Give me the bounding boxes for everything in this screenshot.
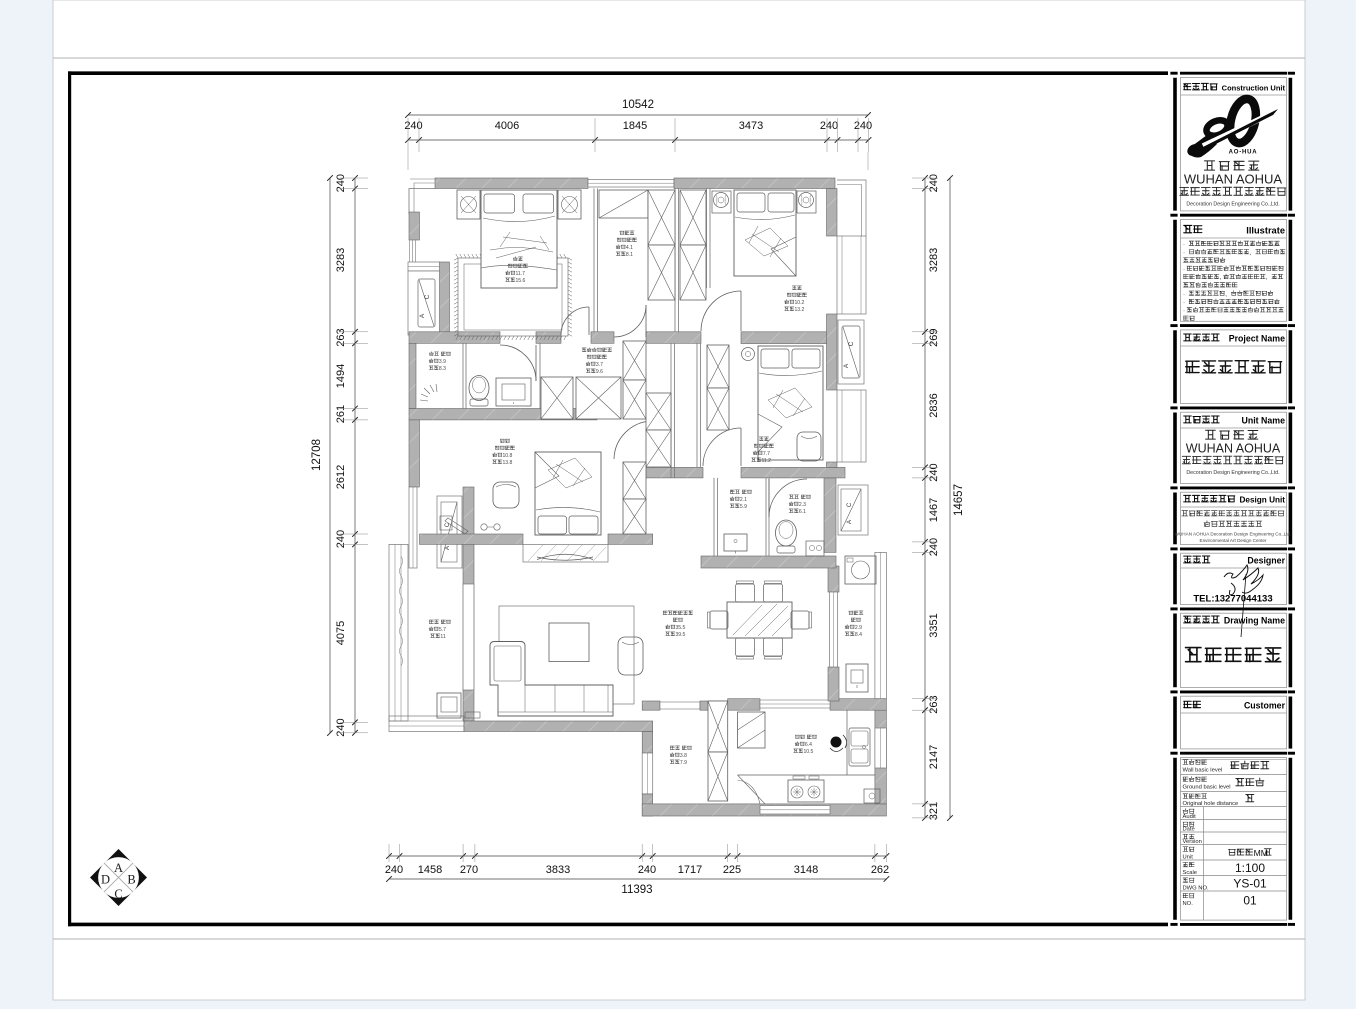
svg-text:A: A bbox=[843, 363, 850, 368]
svg-text:Illustrate: Illustrate bbox=[1246, 226, 1285, 236]
svg-text:Original hole distance: Original hole distance bbox=[1183, 801, 1239, 807]
svg-text:261: 261 bbox=[335, 405, 347, 423]
svg-text:10.2: 10.2 bbox=[794, 300, 804, 306]
svg-text:2.3: 2.3 bbox=[799, 502, 806, 508]
svg-text:6.4: 6.4 bbox=[805, 742, 812, 748]
svg-text:2.1: 2.1 bbox=[740, 497, 747, 503]
svg-text:4075: 4075 bbox=[335, 621, 347, 645]
svg-text:A: A bbox=[114, 861, 123, 875]
svg-text:1494: 1494 bbox=[335, 364, 347, 388]
svg-text:MM: MM bbox=[1254, 848, 1268, 858]
svg-text:240: 240 bbox=[928, 174, 940, 192]
svg-text:3.7: 3.7 bbox=[596, 362, 603, 368]
svg-text:WUHAN AOHUA: WUHAN AOHUA bbox=[1186, 442, 1281, 456]
svg-text:240: 240 bbox=[404, 120, 422, 132]
svg-text:240: 240 bbox=[928, 463, 940, 481]
svg-text:11.7: 11.7 bbox=[515, 271, 525, 277]
svg-text:A: A bbox=[419, 313, 426, 318]
svg-text:A: A bbox=[847, 520, 853, 524]
svg-text:Scale: Scale bbox=[1183, 870, 1198, 876]
svg-text:270: 270 bbox=[460, 864, 478, 876]
svg-text:2836: 2836 bbox=[928, 393, 940, 417]
svg-text:Date: Date bbox=[1183, 827, 1195, 833]
svg-text:Wall basic level: Wall basic level bbox=[1183, 768, 1223, 774]
svg-text:DWG NO.: DWG NO. bbox=[1183, 886, 1209, 892]
svg-text:Version: Version bbox=[1183, 839, 1202, 845]
svg-text:11: 11 bbox=[440, 634, 445, 640]
svg-text:7.7: 7.7 bbox=[763, 451, 770, 457]
svg-text:321: 321 bbox=[928, 802, 940, 820]
svg-text:5.9: 5.9 bbox=[740, 504, 747, 510]
svg-text:240: 240 bbox=[638, 864, 656, 876]
svg-text:11.2: 11.2 bbox=[761, 458, 771, 464]
svg-text:Decoration Design Engineering: Decoration Design Engineering Co.,Ltd. bbox=[1186, 470, 1279, 476]
svg-text:·: · bbox=[1183, 291, 1185, 298]
svg-text:·: · bbox=[1183, 266, 1185, 273]
svg-text:1458: 1458 bbox=[418, 864, 442, 876]
svg-text:2147: 2147 bbox=[928, 745, 940, 769]
svg-text:YS-01: YS-01 bbox=[1233, 876, 1267, 890]
svg-text:3833: 3833 bbox=[546, 864, 570, 876]
svg-text:35.5: 35.5 bbox=[675, 625, 685, 631]
svg-text:Environmental Art Design Cente: Environmental Art Design Center bbox=[1200, 538, 1267, 543]
svg-text:13.2: 13.2 bbox=[794, 307, 804, 313]
svg-text:240: 240 bbox=[385, 864, 403, 876]
svg-text:C: C bbox=[114, 887, 122, 901]
svg-text:1845: 1845 bbox=[623, 120, 647, 132]
svg-text:240: 240 bbox=[928, 538, 940, 556]
svg-text:225: 225 bbox=[723, 864, 741, 876]
svg-text:10.8: 10.8 bbox=[502, 453, 512, 459]
svg-text:,: , bbox=[1250, 249, 1252, 256]
svg-text:5.7: 5.7 bbox=[439, 627, 446, 633]
svg-text:262: 262 bbox=[871, 864, 889, 876]
svg-text:240: 240 bbox=[335, 718, 347, 736]
svg-text:,: , bbox=[1266, 274, 1268, 281]
svg-text:TEL:13277044133: TEL:13277044133 bbox=[1193, 594, 1272, 605]
svg-text:Project Name: Project Name bbox=[1229, 334, 1285, 344]
svg-text:240: 240 bbox=[854, 120, 872, 132]
svg-text:240: 240 bbox=[335, 174, 347, 192]
svg-text:B: B bbox=[127, 873, 135, 887]
svg-text:3473: 3473 bbox=[739, 120, 763, 132]
svg-text:4.1: 4.1 bbox=[626, 245, 633, 251]
svg-text:1:100: 1:100 bbox=[1235, 861, 1265, 875]
svg-text:Drawing Name: Drawing Name bbox=[1224, 616, 1285, 626]
svg-text:14657: 14657 bbox=[953, 484, 965, 516]
svg-text:01: 01 bbox=[1243, 894, 1257, 908]
svg-text:Construction Unit: Construction Unit bbox=[1222, 84, 1286, 93]
svg-text:10542: 10542 bbox=[622, 99, 654, 111]
svg-text:8.4: 8.4 bbox=[855, 632, 862, 638]
svg-text:2.9: 2.9 bbox=[855, 625, 862, 631]
svg-text:8.3: 8.3 bbox=[439, 366, 446, 372]
svg-text:C: C bbox=[848, 341, 855, 346]
svg-text:240: 240 bbox=[820, 120, 838, 132]
svg-text:·: · bbox=[1183, 249, 1185, 256]
svg-text:Ground basic level: Ground basic level bbox=[1183, 785, 1231, 791]
svg-text:Design Unit: Design Unit bbox=[1240, 496, 1286, 505]
svg-text:2612: 2612 bbox=[335, 465, 347, 489]
svg-text:3148: 3148 bbox=[794, 864, 818, 876]
svg-text:Unit Name: Unit Name bbox=[1241, 416, 1285, 426]
svg-text:13.8: 13.8 bbox=[502, 460, 512, 466]
svg-text:·: · bbox=[1183, 307, 1185, 314]
svg-text:269: 269 bbox=[928, 329, 940, 347]
svg-text:3351: 3351 bbox=[928, 613, 940, 637]
svg-text:12708: 12708 bbox=[311, 439, 323, 471]
svg-text:Designer: Designer bbox=[1247, 556, 1285, 566]
svg-text:1717: 1717 bbox=[678, 864, 702, 876]
svg-text:15.6: 15.6 bbox=[515, 278, 525, 284]
svg-text:3283: 3283 bbox=[928, 248, 940, 272]
svg-text:263: 263 bbox=[335, 328, 347, 346]
svg-text:WUHAN AOHUA: WUHAN AOHUA bbox=[1184, 172, 1283, 187]
svg-text:263: 263 bbox=[928, 695, 940, 713]
svg-text:3.8: 3.8 bbox=[680, 753, 687, 759]
svg-text:4006: 4006 bbox=[495, 120, 519, 132]
svg-text:,: , bbox=[1225, 291, 1227, 298]
svg-text:240: 240 bbox=[335, 530, 347, 548]
svg-text:6.1: 6.1 bbox=[799, 509, 806, 515]
svg-text:D: D bbox=[101, 873, 110, 887]
svg-text:·: · bbox=[1183, 299, 1185, 306]
svg-text:AO-HUA: AO-HUA bbox=[1229, 150, 1258, 156]
svg-text:3283: 3283 bbox=[335, 248, 347, 272]
svg-text:NO.: NO. bbox=[1183, 901, 1194, 907]
svg-text:7.9: 7.9 bbox=[680, 760, 687, 766]
svg-text:,: , bbox=[1220, 274, 1222, 281]
svg-text:A: A bbox=[445, 546, 451, 550]
svg-text:8.1: 8.1 bbox=[626, 252, 633, 258]
svg-text:Unit: Unit bbox=[1183, 855, 1194, 861]
svg-text:9.6: 9.6 bbox=[596, 369, 603, 375]
svg-text:WUHAN AOHUA Decoration Design: WUHAN AOHUA Decoration Design Engineerin… bbox=[1175, 532, 1292, 537]
svg-text:C: C bbox=[847, 502, 853, 507]
svg-text:·: · bbox=[1183, 241, 1185, 248]
svg-text:10.5: 10.5 bbox=[803, 749, 813, 755]
svg-text:11393: 11393 bbox=[621, 884, 652, 896]
svg-text:1467: 1467 bbox=[928, 498, 940, 522]
svg-text:C: C bbox=[424, 294, 431, 299]
svg-text:Customer: Customer bbox=[1244, 701, 1286, 711]
svg-text:Decoration Design Engineering: Decoration Design Engineering Co.,Ltd. bbox=[1186, 202, 1279, 208]
svg-text:Audit: Audit bbox=[1183, 814, 1197, 820]
svg-text:3.9: 3.9 bbox=[439, 359, 446, 365]
svg-text:39.5: 39.5 bbox=[675, 632, 685, 638]
